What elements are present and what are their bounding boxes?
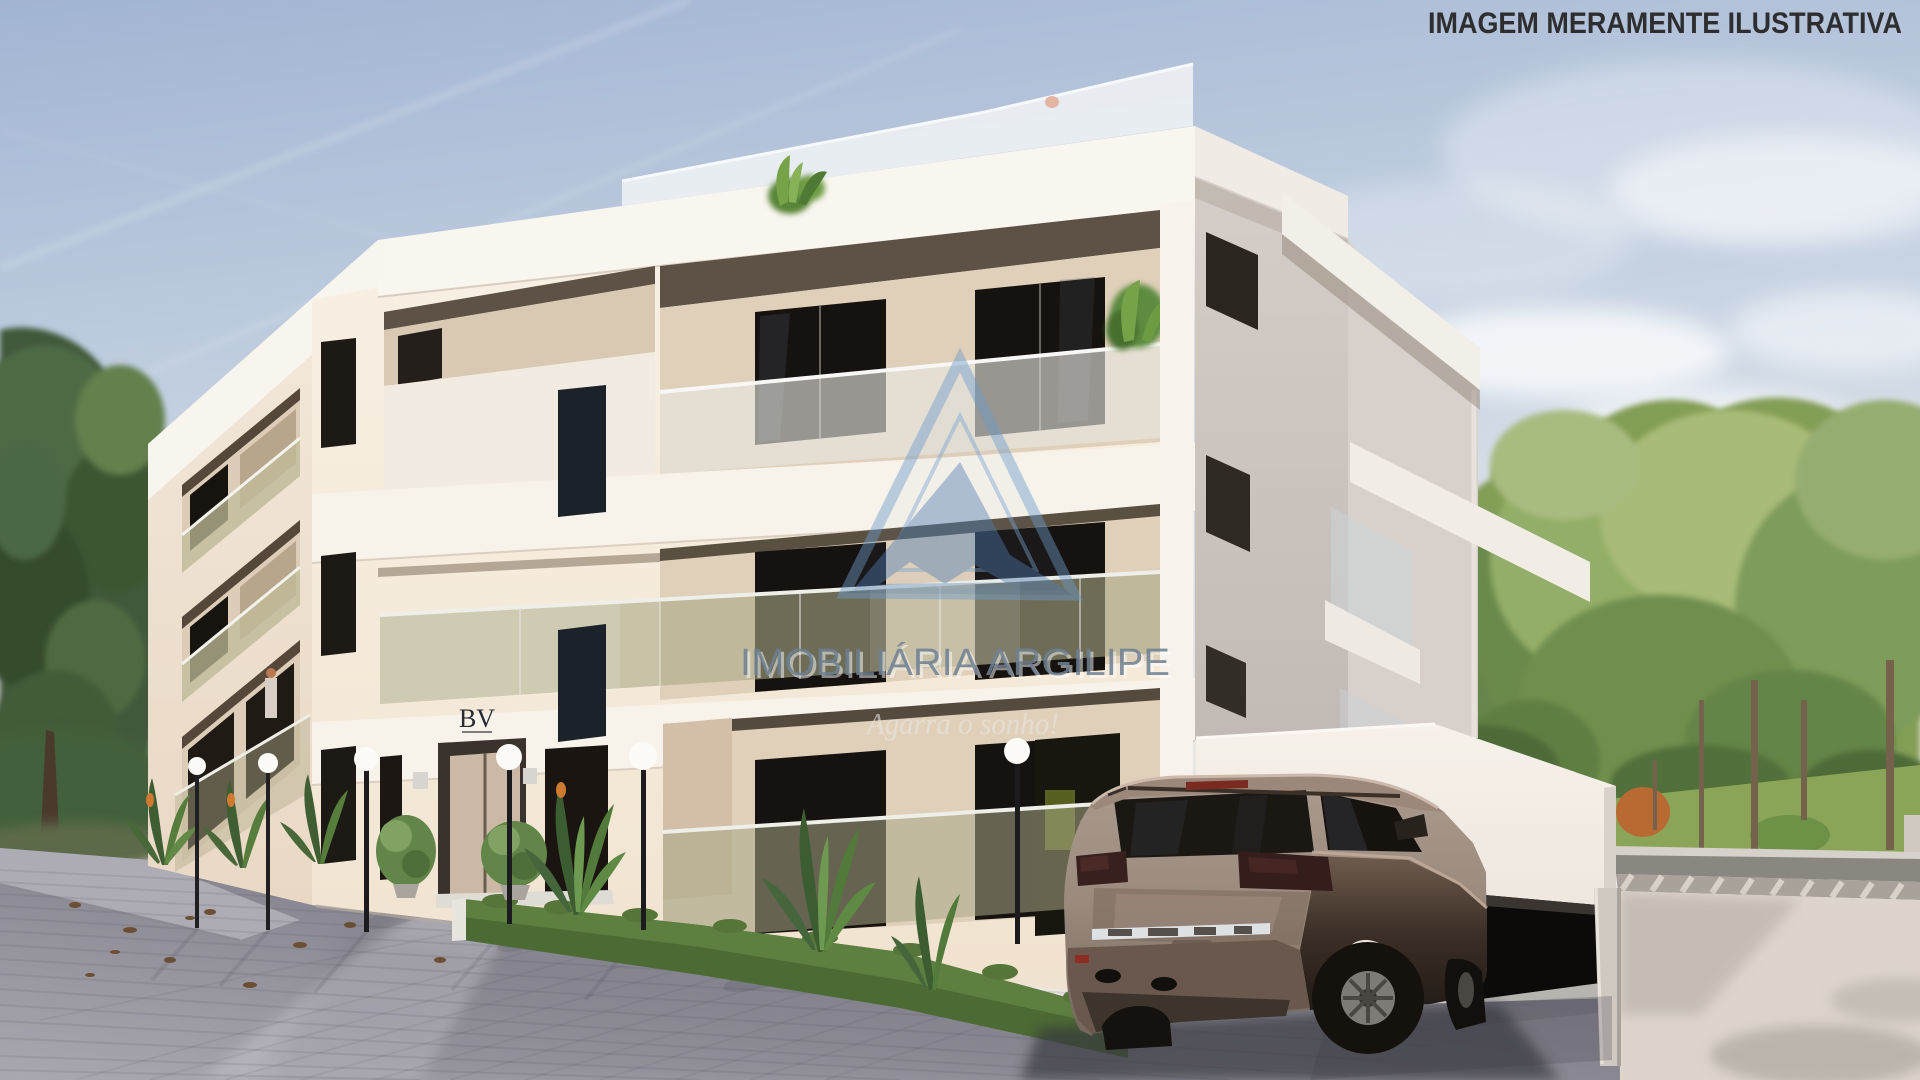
- svg-text:IMOBILIÁRIA ARGILIPE: IMOBILIÁRIA ARGILIPE: [740, 641, 1170, 684]
- svg-text:IMAGEM MERAMENTE ILUSTRATIVA: IMAGEM MERAMENTE ILUSTRATIVA: [1428, 7, 1902, 40]
- svg-text:Agarra o sonho!: Agarra o sonho!: [865, 706, 1059, 741]
- svg-text:BV: BV: [459, 704, 495, 733]
